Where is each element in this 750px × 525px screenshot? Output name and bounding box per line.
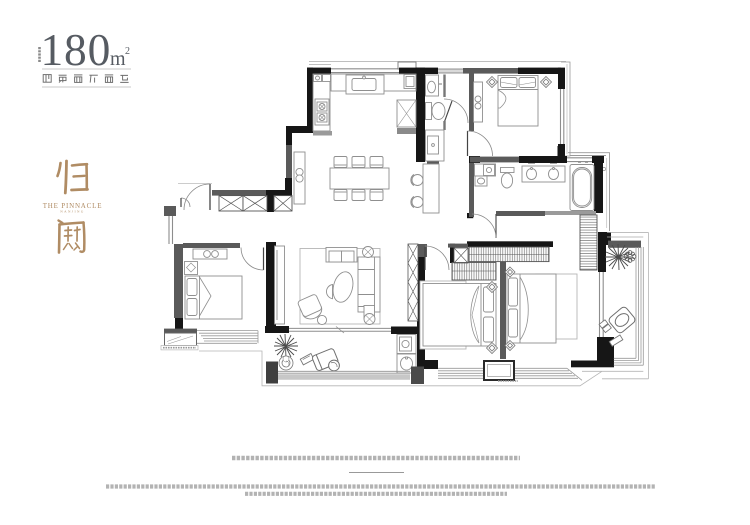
svg-text:m: m <box>110 48 126 70</box>
svg-text:2: 2 <box>125 46 130 57</box>
svg-text:180: 180 <box>41 24 112 75</box>
svg-text:NANJING: NANJING <box>60 210 85 214</box>
